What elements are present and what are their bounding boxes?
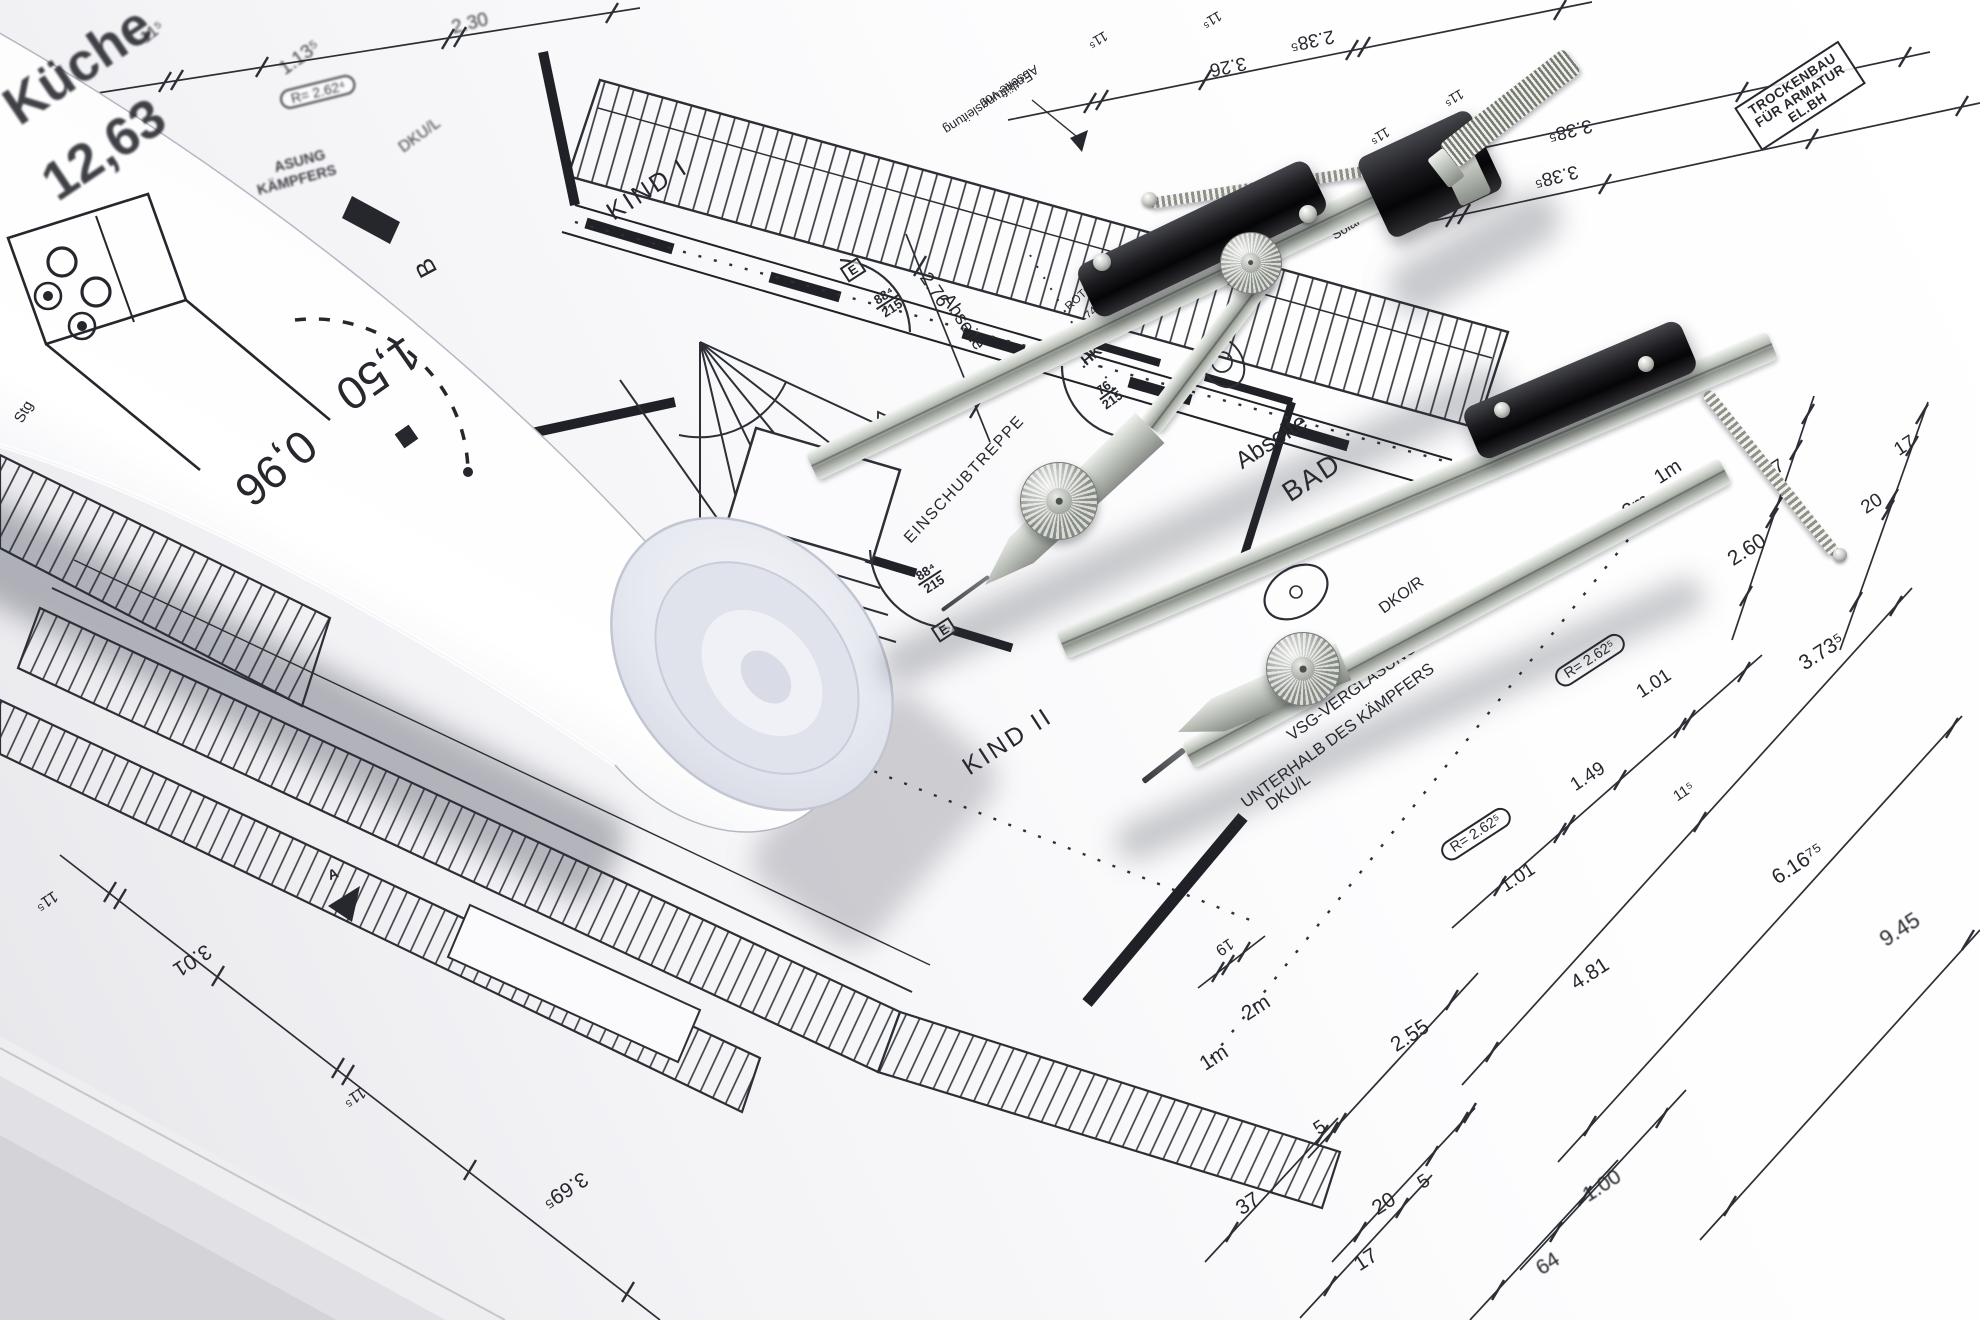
grip-rivet [1494,402,1510,418]
compass-lead-tip [1141,747,1186,784]
drafting-compass [0,0,1980,1320]
grip-rivet [1093,253,1111,271]
adjust-wheel-center [1220,232,1282,294]
photo-architectural-blueprints: 11⁵ 1.13⁵ 2.30 R= 2.62⁴ ASUNG KÄMPFERS D… [0,0,1980,1320]
bow-screw-tip [1833,548,1847,562]
grip-rivet [1299,205,1317,223]
screw-end-ball [1142,192,1157,207]
adjust-wheel-needle [1020,462,1098,540]
grip-rivet [1638,356,1654,372]
compass-knurled-rod [1439,48,1582,169]
adjust-wheel-lead [1266,632,1340,706]
